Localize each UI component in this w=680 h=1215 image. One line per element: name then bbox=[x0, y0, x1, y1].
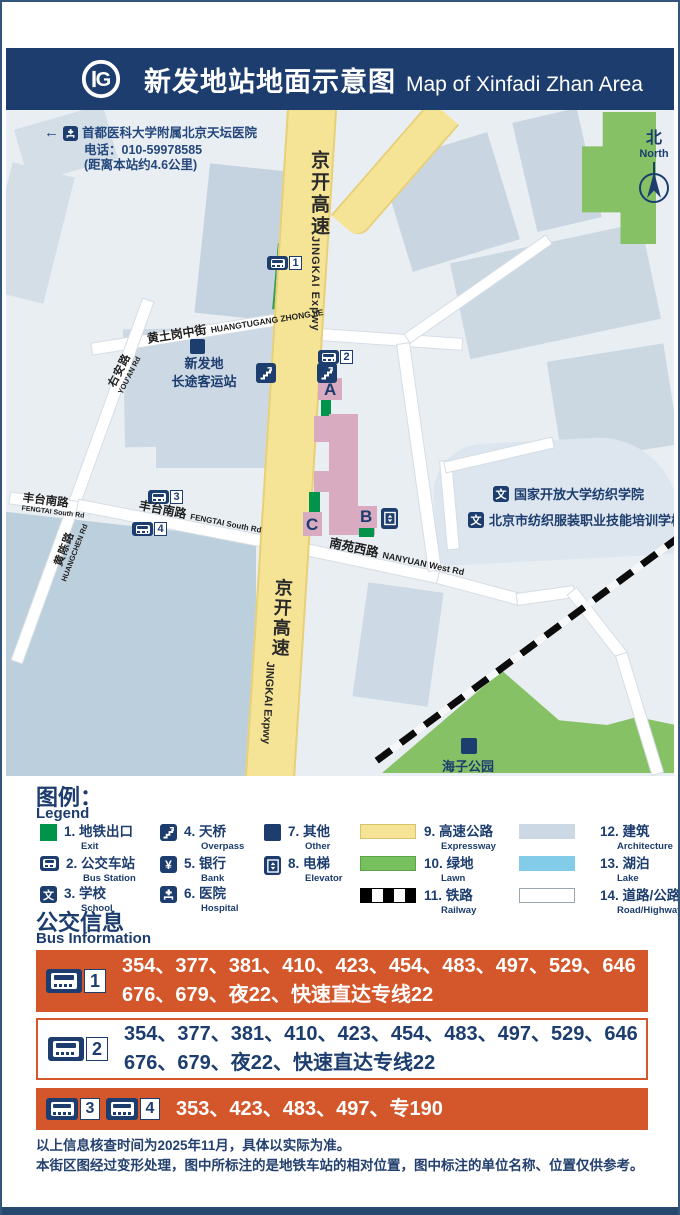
north-en: North bbox=[634, 148, 674, 160]
station-structure-main bbox=[329, 414, 358, 525]
railway-swatch bbox=[360, 888, 416, 903]
elevator-icon bbox=[264, 856, 281, 875]
exit-swatch bbox=[40, 824, 57, 841]
bus-terminal-label-line2: 长途客运站 bbox=[152, 373, 256, 391]
hospital-info-box: ← 首都医科大学附属北京天坛医院 电话：010-59978585 (距离本站约4… bbox=[44, 124, 257, 174]
exit-a-label: A bbox=[324, 380, 336, 400]
school-1: 文 国家开放大学纺织学院 bbox=[493, 484, 644, 503]
legend-item-overpass: 4. 天桥Overpass bbox=[160, 824, 244, 852]
bus-icon bbox=[48, 1037, 84, 1061]
legend-title-en: Legend bbox=[36, 805, 89, 822]
header: G 新发地站地面示意图 Map of Xinfadi Zhan Area bbox=[6, 48, 674, 110]
legend-item-road-highway: 14. 道路/公路Road/Highway bbox=[600, 888, 680, 916]
school-icon: 文 bbox=[468, 512, 484, 528]
bus-stop-badge-2: 2 bbox=[48, 1037, 108, 1061]
expressway-label-north-en: JINGKAI Expwy bbox=[309, 236, 321, 332]
park-label: 海子公园 bbox=[442, 756, 494, 775]
road-nanyuan-3 bbox=[517, 586, 575, 605]
expressway-label-south-zh: 京开高速 bbox=[266, 577, 296, 658]
bottom-bar bbox=[2, 1207, 678, 1215]
hospital-distance: (距离本站约4.6公里) bbox=[84, 158, 257, 174]
station-exit-c-pad: C bbox=[303, 512, 322, 536]
bus-route-row-3: 3 4 353、423、483、497、专190 bbox=[36, 1088, 648, 1130]
school-icon: 文 bbox=[493, 486, 509, 502]
bus-stop-number: 3 bbox=[80, 1098, 100, 1120]
hospital-phone: 电话：010-59978585 bbox=[84, 143, 257, 159]
lawn-swatch bbox=[360, 856, 416, 871]
overpass-icon bbox=[256, 363, 276, 383]
bus-stop-number: 4 bbox=[140, 1098, 160, 1120]
north-zh: 北 bbox=[634, 124, 674, 148]
svg-text:G: G bbox=[96, 69, 112, 91]
legend-item-hospital: 6. 医院Hospital bbox=[160, 886, 238, 914]
other-marker-icon bbox=[461, 738, 477, 754]
bus-stop-number: 4 bbox=[154, 522, 167, 536]
bus-info-title-en: Bus Information bbox=[36, 930, 151, 947]
north-indicator: 北 North bbox=[634, 124, 674, 211]
road-swatch bbox=[519, 888, 575, 903]
station-exit-b-pad: B bbox=[356, 506, 377, 528]
bus-stop-number: 2 bbox=[340, 350, 353, 364]
building bbox=[6, 162, 75, 304]
lake-swatch bbox=[519, 856, 575, 871]
bus-terminal-label: 新发地 长途客运站 bbox=[152, 355, 256, 391]
school-1-label: 国家开放大学纺织学院 bbox=[514, 484, 644, 503]
bus-route-row-1: 1 354、377、381、410、423、454、483、497、529、64… bbox=[36, 950, 648, 1012]
hospital-icon bbox=[160, 886, 177, 903]
building bbox=[352, 582, 443, 706]
note-line-2: 本街区图经过变形处理，图中所标注的是地铁车站的相对位置，图中标注的单位名称、位置… bbox=[36, 1154, 644, 1174]
bus-icon bbox=[46, 969, 82, 993]
building bbox=[156, 440, 266, 468]
bus-icon bbox=[46, 1098, 78, 1120]
legend-item-elevator: 8. 电梯Elevator bbox=[264, 856, 343, 884]
bus-stop-badge-1: 1 bbox=[46, 969, 106, 993]
bus-stop-4: 4 bbox=[132, 522, 167, 536]
title-zh: 新发地站地面示意图 bbox=[144, 60, 396, 99]
map-canvas: A C B 1 2 bbox=[6, 110, 674, 776]
bus-stop-number: 1 bbox=[289, 256, 302, 270]
bus-stop-badge-3: 3 bbox=[46, 1098, 100, 1120]
legend-item-exit: 1. 地铁出口Exit bbox=[40, 824, 133, 852]
legend-item-other: 7. 其他Other bbox=[264, 824, 330, 852]
bus-terminal-label-line1: 新发地 bbox=[152, 355, 256, 373]
elevator-icon bbox=[381, 508, 398, 529]
title-en: Map of Xinfadi Zhan Area bbox=[406, 73, 643, 97]
legend-item-lake: 13. 湖泊Lake bbox=[600, 856, 650, 884]
expressway-label-north-zh: 京开高速 bbox=[305, 150, 332, 238]
bus-stop-number: 2 bbox=[86, 1037, 108, 1061]
other-marker-icon bbox=[264, 824, 281, 841]
bus-icon bbox=[318, 350, 339, 364]
compass-icon bbox=[637, 160, 671, 206]
legend-item-lawn: 10. 绿地Lawn bbox=[424, 856, 474, 884]
bus-stop-badge-4: 4 bbox=[106, 1098, 160, 1120]
beijing-subway-logo-icon: G bbox=[80, 58, 122, 100]
bus-routes-line: 676、679、夜22、快速直达专线22 bbox=[122, 981, 636, 1010]
page-title: 新发地站地面示意图 Map of Xinfadi Zhan Area bbox=[144, 60, 643, 99]
school-2: 文 北京市纺织服装职业技能培训学校 bbox=[468, 510, 674, 529]
bus-stop-number: 1 bbox=[84, 969, 106, 993]
exit-b-label: B bbox=[360, 507, 372, 527]
architecture-swatch bbox=[519, 824, 575, 839]
bus-route-row-2: 2 354、377、381、410、423、454、483、497、529、64… bbox=[36, 1018, 648, 1080]
bank-icon: ¥ bbox=[160, 856, 177, 873]
bus-routes-line: 354、377、381、410、423、454、483、497、529、646 bbox=[124, 1020, 638, 1049]
bus-routes-line: 676、679、夜22、快速直达专线22 bbox=[124, 1049, 638, 1078]
station-structure bbox=[314, 471, 330, 492]
legend-item-bank: ¥ 5. 银行Bank bbox=[160, 856, 226, 884]
note-line-1: 以上信息核查时间为2025年11月，具体以实际为准。 bbox=[36, 1134, 350, 1154]
overpass-icon bbox=[160, 824, 177, 841]
exit-b-marker bbox=[359, 528, 374, 537]
road-huangtugang-east bbox=[322, 329, 462, 350]
exit-c-label: C bbox=[306, 515, 318, 535]
legend-item-expressway: 9. 高速公路Expressway bbox=[424, 824, 496, 852]
bus-icon bbox=[267, 256, 288, 270]
overpass-icon bbox=[317, 363, 337, 383]
legend-item-railway: 11. 铁路Railway bbox=[424, 888, 476, 916]
bus-icon bbox=[106, 1098, 138, 1120]
bus-stop-2: 2 bbox=[318, 350, 353, 364]
bus-routes-line: 354、377、381、410、423、454、483、497、529、646 bbox=[122, 952, 636, 981]
left-arrow-icon: ← bbox=[44, 124, 59, 143]
legend-item-bus-station: 2. 公交车站Bus Station bbox=[40, 856, 136, 884]
hospital-name: 首都医科大学附属北京天坛医院 bbox=[82, 126, 257, 142]
bus-stop-1: 1 bbox=[267, 256, 302, 270]
road-station-east bbox=[397, 343, 441, 570]
bus-icon bbox=[132, 522, 153, 536]
legend-item-architecture: 12. 建筑Architecture bbox=[600, 824, 673, 852]
school-2-label: 北京市纺织服装职业技能培训学校 bbox=[489, 510, 674, 529]
bus-routes-line: 353、423、483、497、专190 bbox=[176, 1099, 443, 1119]
station-area-map-sign: G 新发地站地面示意图 Map of Xinfadi Zhan Area bbox=[0, 0, 680, 1215]
school-icon: 文 bbox=[40, 886, 57, 903]
expressway-swatch bbox=[360, 824, 416, 839]
hospital-icon bbox=[63, 126, 78, 141]
exit-c-marker bbox=[309, 492, 320, 512]
bus-icon bbox=[40, 856, 59, 871]
